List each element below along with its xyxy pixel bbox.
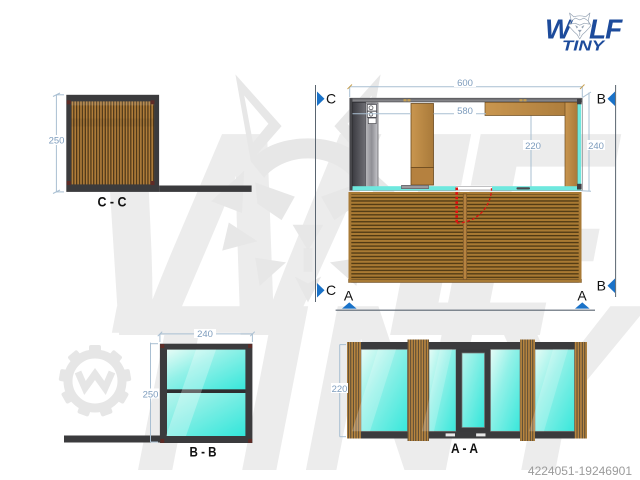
svg-text:240: 240: [197, 329, 213, 340]
svg-text:C - C: C - C: [98, 194, 127, 210]
svg-text:TINY: TINY: [562, 39, 606, 55]
svg-text:600: 600: [457, 78, 473, 89]
svg-text:A: A: [577, 288, 587, 304]
svg-text:580: 580: [457, 106, 473, 117]
svg-text:C: C: [326, 91, 336, 107]
svg-text:250: 250: [49, 136, 65, 147]
svg-text:220: 220: [525, 141, 541, 152]
svg-text:240: 240: [588, 141, 604, 152]
svg-text:220: 220: [332, 384, 348, 395]
svg-text:4224051-19246901: 4224051-19246901: [528, 464, 632, 478]
svg-text:250: 250: [143, 389, 159, 400]
svg-text:B: B: [597, 278, 606, 294]
svg-text:B: B: [597, 91, 606, 107]
svg-text:B - B: B - B: [190, 444, 217, 460]
svg-text:C: C: [326, 282, 336, 298]
svg-text:A: A: [344, 288, 354, 304]
svg-text:A - A: A - A: [451, 440, 478, 456]
